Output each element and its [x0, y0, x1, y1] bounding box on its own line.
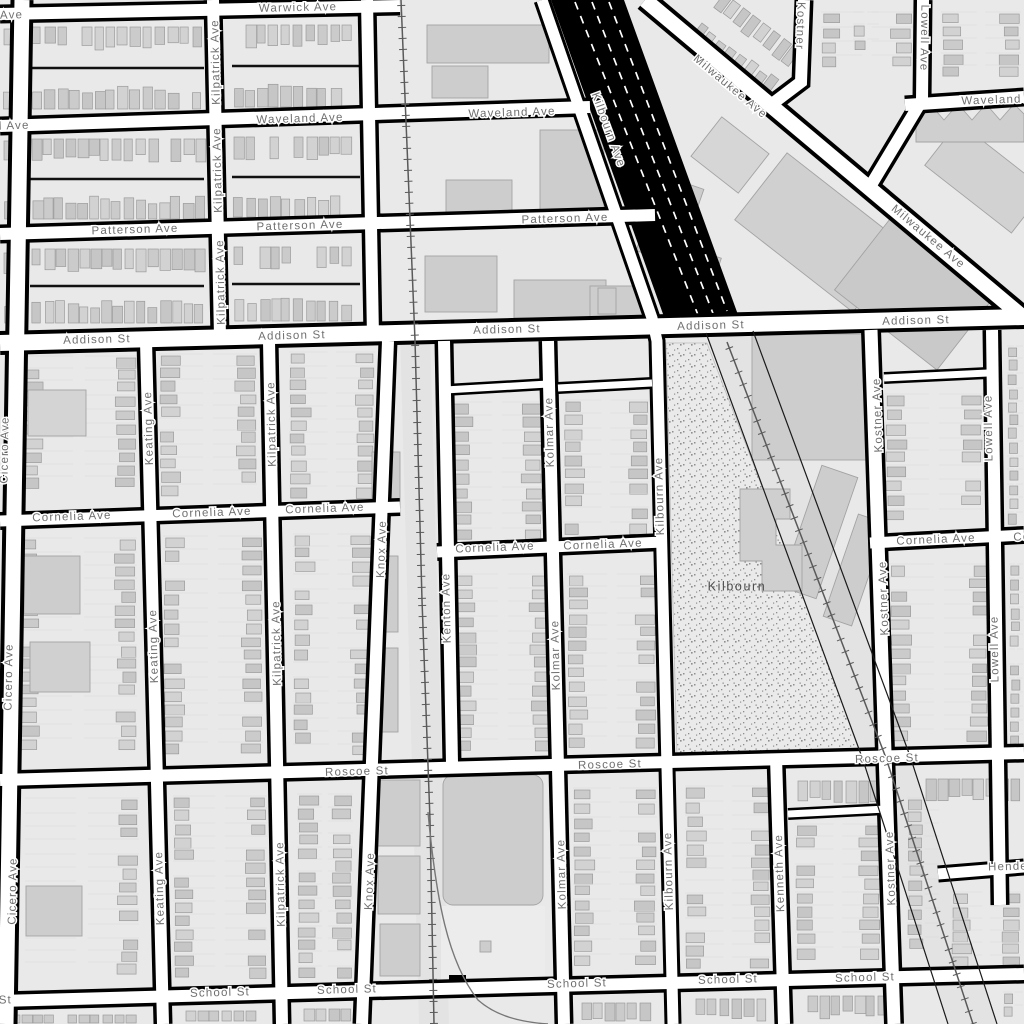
street-label-warwick-ave: Warwick Ave: [259, 1, 338, 15]
street-label-hende: Hende: [988, 861, 1024, 874]
street-label-kostner: Kostner: [793, 2, 807, 50]
street-kenton-ave: [444, 341, 452, 763]
street-label-kilpatrick-ave: Kilpatrick Ave: [265, 381, 279, 467]
street-label-addison-st: Addison St: [677, 319, 745, 333]
street-label-school-st: School St: [547, 977, 607, 991]
street-label-cicero-ave: Cicero Ave: [7, 857, 20, 925]
street-label-knox-ave: Knox Ave: [363, 852, 377, 910]
street-label-kilbourn-ave: Kilbourn Ave: [653, 456, 667, 535]
street-label-addison-st: Addison St: [473, 323, 541, 337]
street-label-addison-st: Addison St: [63, 333, 131, 347]
street-label-kostner-ave: Kostner Ave: [877, 560, 891, 635]
street-label-roscoe-st: Roscoe St: [578, 758, 642, 772]
street-label-lowell-ave: Lowell Ave: [989, 616, 1002, 683]
street-label-knox-ave: Knox Ave: [375, 520, 389, 578]
street-label-kilpatrick-ave: Kilpatrick Ave: [214, 239, 228, 325]
street-label-keating-ave: Keating Ave: [142, 391, 156, 466]
street-label-addison-st: Addison St: [882, 314, 950, 328]
street-label-kilpatrick-ave: Kilpatrick Ave: [211, 127, 225, 213]
street-label-kenton-ave: Kenton Ave: [440, 573, 453, 644]
street-label-cicero-ave: Cicero Ave: [3, 643, 16, 711]
street-label-lowell-ave: Lowell Ave: [983, 395, 996, 462]
street-label-school-st: School St: [317, 983, 377, 997]
street-label-kenneth-ave: Kenneth Ave: [773, 834, 787, 913]
street-label-kilpatrick-ave: Kilpatrick Ave: [209, 19, 223, 105]
street-label-keating-ave: Keating Ave: [153, 851, 167, 926]
street-label-kostner-ave: Kostner Ave: [884, 830, 898, 905]
street-label-kolmar-ave: Kolmar Ave: [549, 620, 563, 691]
street-label-school-st: School St: [698, 973, 758, 987]
street-label-keating-ave: Keating Ave: [147, 609, 161, 684]
street-label-cicero-ave: Cicero Ave: [0, 416, 12, 484]
street-label-addison-st: Addison St: [258, 329, 326, 343]
street-label-warwick-ave: Warwick Ave: [0, 9, 23, 23]
street-warwick-ave: [0, 6, 400, 14]
street-label-kolmar-ave: Kolmar Ave: [543, 397, 557, 468]
street-street: [788, 809, 886, 814]
street-label-waveland-ave: Waveland Ave: [961, 93, 1024, 108]
street-label-school-st: School St: [835, 971, 895, 985]
street-label-kostner-ave: Kostner Ave: [871, 377, 885, 452]
street-label-school-st: School St: [190, 986, 250, 1000]
street-label-roscoe-st: Roscoe St: [855, 752, 919, 766]
street-label-kilpatrick-ave: Kilpatrick Ave: [274, 841, 288, 927]
street-street: [558, 383, 652, 388]
street-label-kilpatrick-ave: Kilpatrick Ave: [270, 600, 284, 686]
park-label: Kilbourn: [708, 579, 767, 593]
street-street: [367, 0, 373, 337]
map-viewport[interactable]: Warwick AveWarwick AveWaveland AveWavela…: [0, 0, 1024, 1024]
map-canvas[interactable]: Warwick AveWarwick AveWaveland AveWavela…: [0, 0, 1024, 1024]
street-label-roscoe-st: Roscoe St: [325, 765, 389, 779]
street-label-lowell-ave: Lowell Ave: [917, 5, 930, 72]
street-street: [884, 373, 988, 378]
street-label-kilbourn-ave: Kilbourn Ave: [662, 831, 676, 910]
street-label-kolmar-ave: Kolmar Ave: [555, 839, 569, 910]
street-label-school-st: School St: [0, 994, 12, 1008]
